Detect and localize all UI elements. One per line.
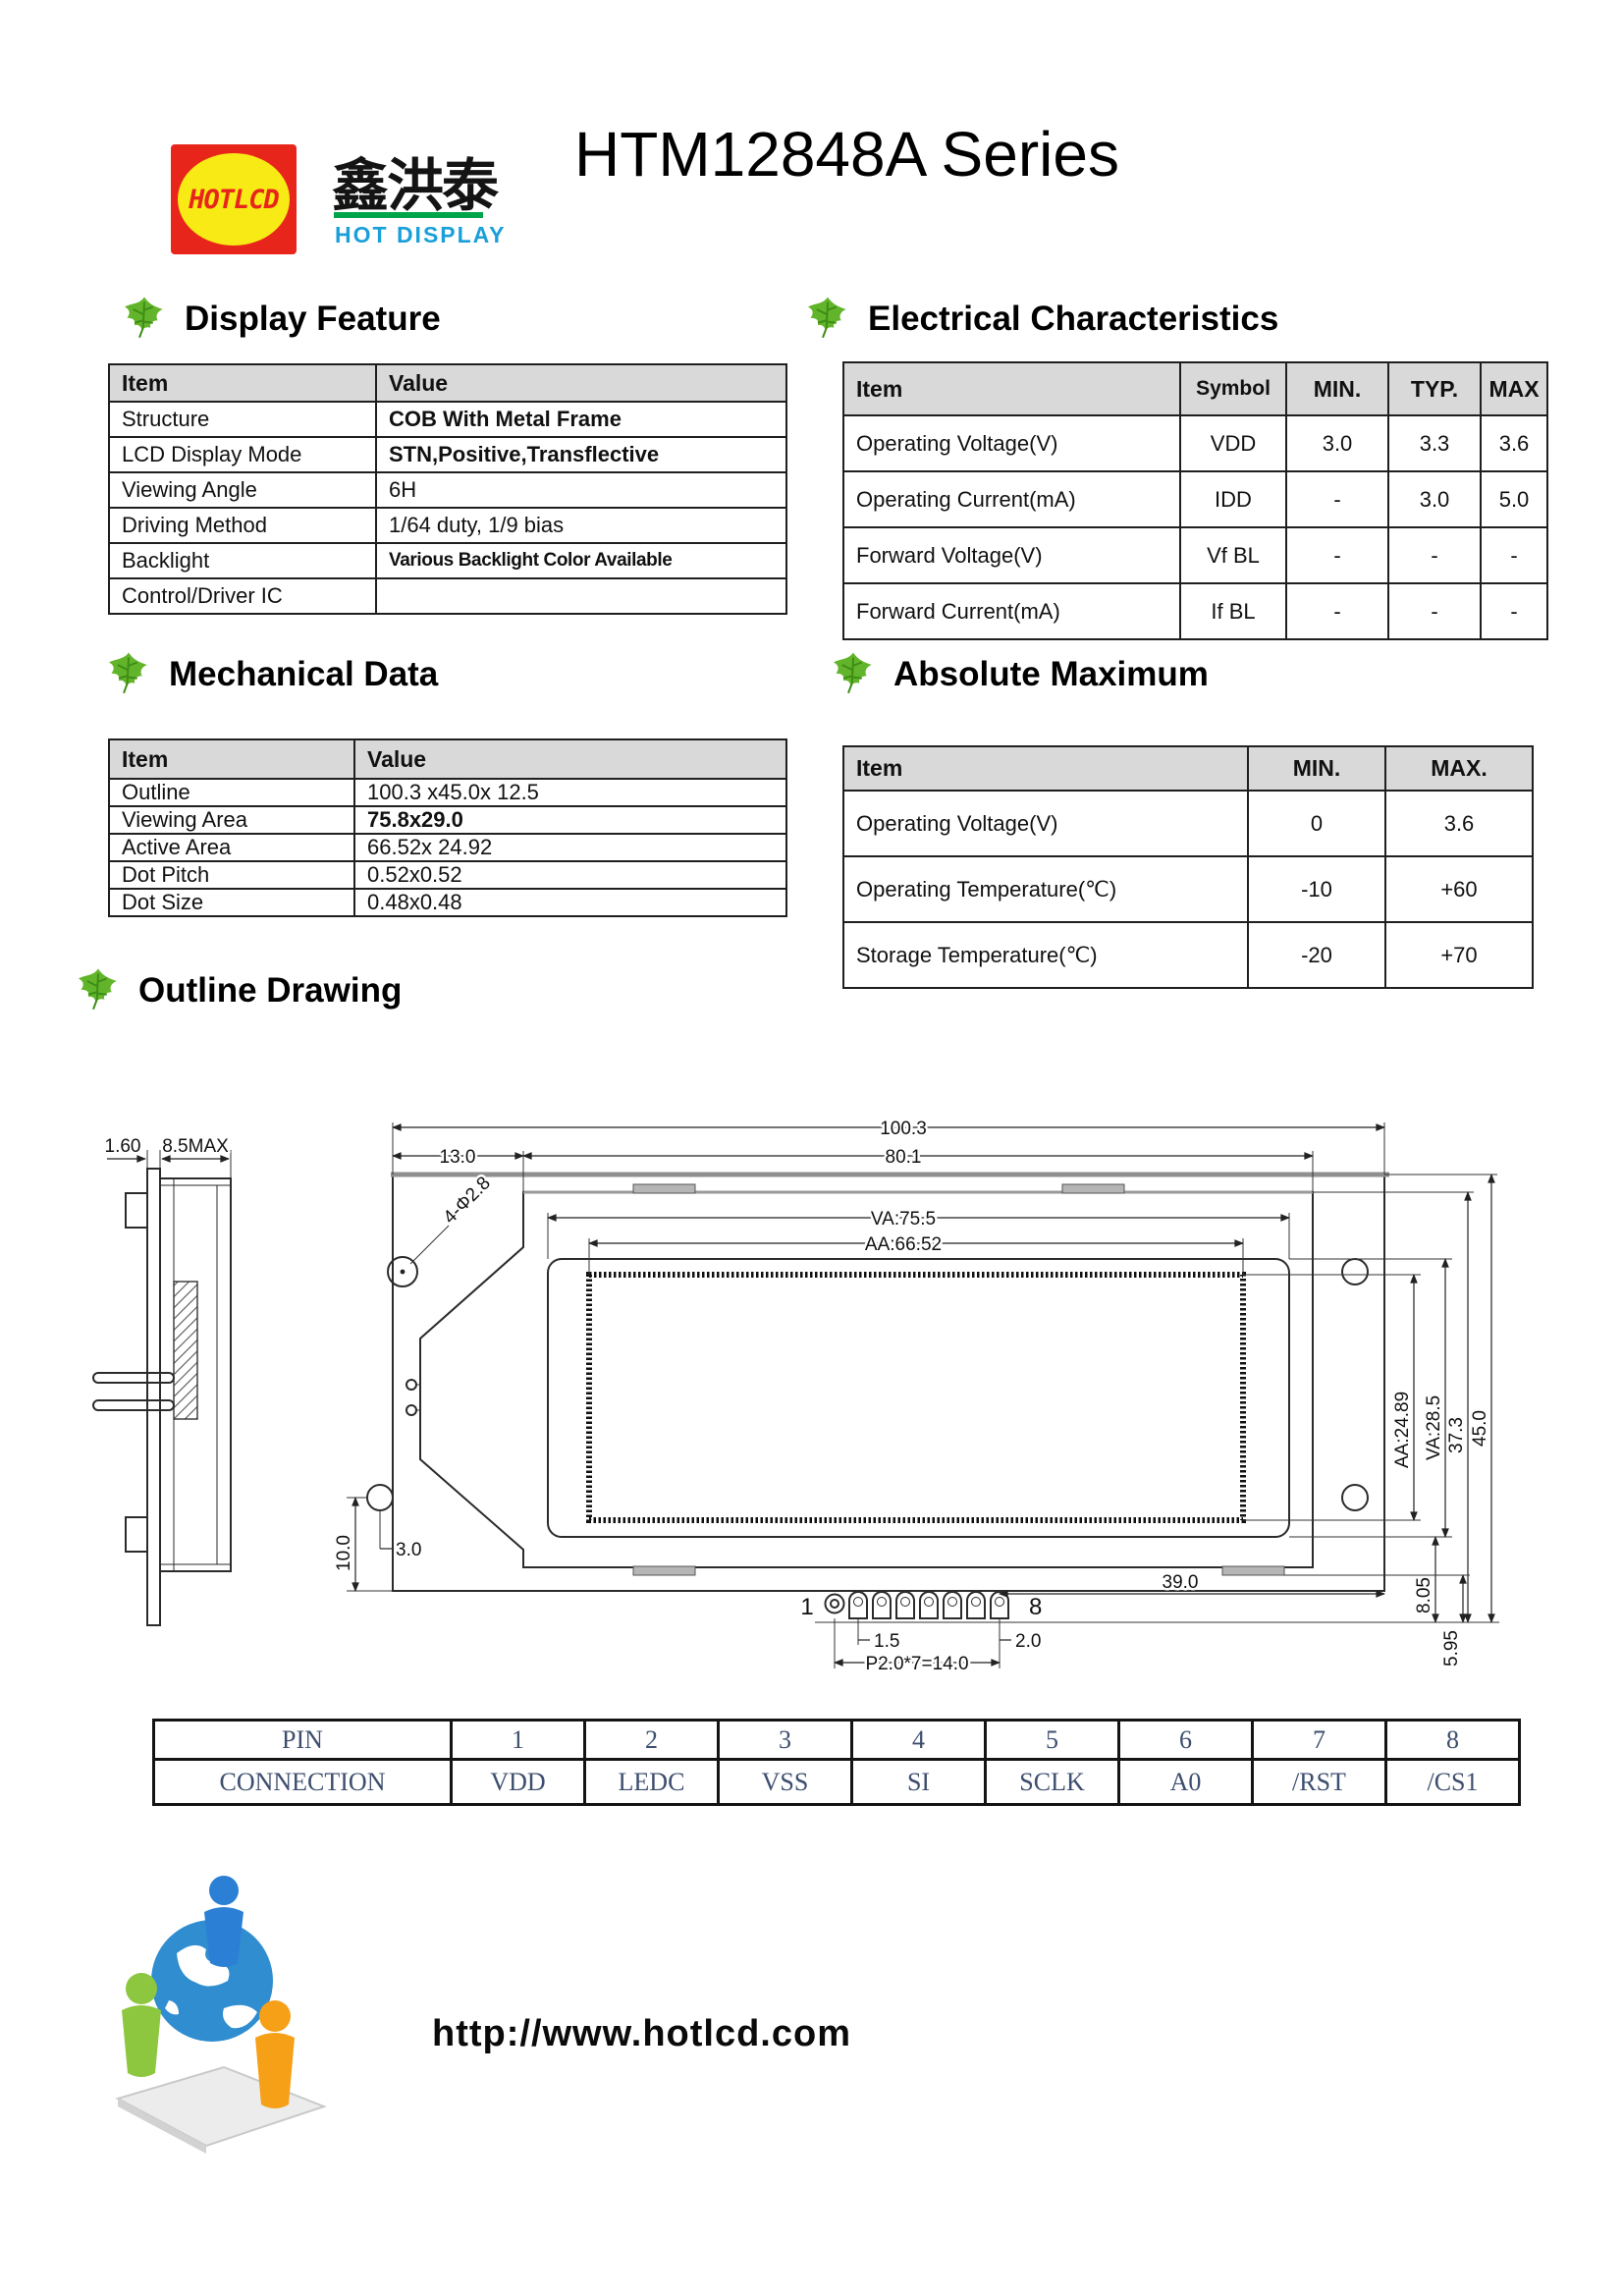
- table-cell: 3: [719, 1721, 852, 1760]
- table-cell: 3.6: [1385, 791, 1533, 856]
- table-row: Outline100.3 x45.0x 12.5: [109, 779, 786, 806]
- hatched-section: [174, 1282, 197, 1419]
- column-header: MIN.: [1248, 746, 1385, 791]
- table-cell: VDD: [1180, 415, 1286, 471]
- mounting-hole: [1342, 1485, 1368, 1510]
- table-cell: /CS1: [1386, 1760, 1520, 1805]
- dim-label-8-05: 8.05: [1414, 1577, 1434, 1613]
- logo-wordmark: HOTLCD: [189, 185, 279, 215]
- table-cell: 0.52x0.52: [354, 861, 786, 889]
- table-cell: 3.6: [1481, 415, 1547, 471]
- table-cell: Backlight: [109, 543, 376, 578]
- table-cell: A0: [1119, 1760, 1253, 1805]
- top-dimensions: 100.3 13.0 80.1 VA:75.5 AA:66.52: [393, 1119, 1384, 1275]
- table-row: Operating Voltage(V)VDD3.03.33.6: [843, 415, 1547, 471]
- dim-label-10-0: 10.0: [334, 1535, 354, 1571]
- person-orange: [255, 2000, 295, 2108]
- dim-label-va-height: VA:28.5: [1424, 1395, 1444, 1460]
- table-cell: Operating Voltage(V): [843, 791, 1248, 856]
- section-outline-drawing: Outline Drawing: [74, 966, 402, 1015]
- column-header: Value: [376, 364, 786, 402]
- dim-label-2-0: 2.0: [1015, 1631, 1041, 1652]
- dim-label-39-0: 39.0: [1163, 1572, 1199, 1593]
- table-cell: 3.0: [1286, 415, 1388, 471]
- table-cell: 0: [1248, 791, 1385, 856]
- table-cell: 66.52x 24.92: [354, 834, 786, 861]
- table-cell: -: [1286, 527, 1388, 583]
- table-cell: CONNECTION: [154, 1760, 452, 1805]
- section-electrical: Electrical Characteristics: [803, 295, 1278, 344]
- table-row: Forward Current(mA)If BL---: [843, 583, 1547, 639]
- table-row: Active Area66.52x 24.92: [109, 834, 786, 861]
- table-cell: -: [1388, 527, 1481, 583]
- table-cell: /RST: [1253, 1760, 1386, 1805]
- table-cell: VDD: [452, 1760, 585, 1805]
- pin-number-last: 8: [1029, 1594, 1042, 1620]
- pin-1: [826, 1595, 844, 1613]
- table-cell: Various Backlight Color Available: [376, 543, 786, 578]
- frame-tab: [633, 1184, 695, 1193]
- table-cell: Viewing Angle: [109, 472, 376, 508]
- table-cell: IDD: [1180, 471, 1286, 527]
- table-cell: 5.0: [1481, 471, 1547, 527]
- table-cell: 5: [986, 1721, 1119, 1760]
- website-url: http://www.hotlcd.com: [432, 2013, 851, 2055]
- table-header-row: Item Value: [109, 364, 786, 402]
- person-green: [122, 1973, 161, 2077]
- outline-drawing: 1.60 8.5MAX: [83, 1075, 1517, 1714]
- datasheet-page: HOTLCD 鑫洪泰 HOT DISPLAY HTM12848A Series …: [0, 0, 1623, 2296]
- table-cell: 1: [452, 1721, 585, 1760]
- table-row: StructureCOB With Metal Frame: [109, 402, 786, 437]
- table-cell: Operating Current(mA): [843, 471, 1180, 527]
- column-header: MAX.: [1385, 746, 1533, 791]
- leaf-icon: [829, 650, 878, 699]
- table-row: Control/Driver IC: [109, 578, 786, 614]
- table-row: Forward Voltage(V)Vf BL---: [843, 527, 1547, 583]
- side-view: 1.60 8.5MAX: [93, 1136, 231, 1625]
- leaf-icon: [74, 966, 123, 1015]
- table-cell: LEDC: [585, 1760, 719, 1805]
- table-cell: 7: [1253, 1721, 1386, 1760]
- table-header-row: Item MIN. MAX.: [843, 746, 1533, 791]
- table-row: LCD Display ModeSTN,Positive,Transflecti…: [109, 437, 786, 472]
- display-feature-table: Item Value StructureCOB With Metal Frame…: [108, 363, 787, 615]
- table-cell: Storage Temperature(℃): [843, 922, 1248, 988]
- table-cell: Active Area: [109, 834, 354, 861]
- company-logo: HOTLCD: [171, 144, 297, 254]
- table-row: Driving Method1/64 duty, 1/9 bias: [109, 508, 786, 543]
- table-cell: -: [1286, 583, 1388, 639]
- table-row: BacklightVarious Backlight Color Availab…: [109, 543, 786, 578]
- table-row: Operating Voltage(V)03.6: [843, 791, 1533, 856]
- leaf-icon: [120, 295, 169, 344]
- table-cell: +70: [1385, 922, 1533, 988]
- table-cell: Structure: [109, 402, 376, 437]
- table-cell: -: [1286, 471, 1388, 527]
- connector-pins: 1 8 1.5 2.0 P2.0*7=14.0 39.0: [800, 1572, 1384, 1674]
- mounting-hole: [367, 1485, 393, 1510]
- dim-label-13-0: 13.0: [440, 1147, 476, 1168]
- column-header: TYP.: [1388, 362, 1481, 415]
- table-row: Operating Temperature(℃)-10+60: [843, 856, 1533, 922]
- table-cell: Operating Temperature(℃): [843, 856, 1248, 922]
- logo-ellipse: HOTLCD: [178, 153, 290, 246]
- table-row: Viewing Angle6H: [109, 472, 786, 508]
- dim-label-3-0: 3.0: [396, 1540, 421, 1560]
- table-cell: Forward Voltage(V): [843, 527, 1180, 583]
- dim-label-100-3: 100.3: [880, 1119, 927, 1139]
- backlight-pin-end: [406, 1380, 416, 1390]
- table-cell: 3.0: [1388, 471, 1481, 527]
- column-header: Item: [109, 364, 376, 402]
- section-title: Display Feature: [185, 300, 441, 339]
- page-title: HTM12848A Series: [574, 118, 1119, 191]
- table-cell: Dot Size: [109, 889, 354, 916]
- pin-number-first: 1: [800, 1594, 813, 1620]
- frame-tab: [1062, 1184, 1124, 1193]
- table-cell: Dot Pitch: [109, 861, 354, 889]
- section-mechanical: Mechanical Data: [104, 650, 438, 699]
- table-cell: -20: [1248, 922, 1385, 988]
- logo-chinese-name: 鑫洪泰: [332, 139, 497, 222]
- table-cell: STN,Positive,Transflective: [376, 437, 786, 472]
- logo-underline: [334, 212, 483, 218]
- section-title: Mechanical Data: [169, 655, 438, 694]
- table-cell: 1/64 duty, 1/9 bias: [376, 508, 786, 543]
- table-cell: 100.3 x45.0x 12.5: [354, 779, 786, 806]
- table-row: CONNECTION VDD LEDC VSS SI SCLK A0 /RST …: [154, 1760, 1520, 1805]
- table-cell: 8: [1386, 1721, 1520, 1760]
- table-row: Dot Size0.48x0.48: [109, 889, 786, 916]
- leaf-icon: [104, 650, 153, 699]
- table-cell: 75.8x29.0: [354, 806, 786, 834]
- mechanical-table: Item Value Outline100.3 x45.0x 12.5 View…: [108, 738, 787, 917]
- table-header-row: Item Value: [109, 739, 786, 779]
- section-title: Outline Drawing: [138, 971, 402, 1011]
- logo-subtitle: HOT DISPLAY: [335, 222, 507, 248]
- absolute-maximum-table: Item MIN. MAX. Operating Voltage(V)03.6 …: [842, 745, 1534, 989]
- table-cell: Driving Method: [109, 508, 376, 543]
- column-header: MAX: [1481, 362, 1547, 415]
- table-cell: 3.3: [1388, 415, 1481, 471]
- table-cell: +60: [1385, 856, 1533, 922]
- mounting-hole: [1342, 1259, 1368, 1285]
- electrical-table: Item Symbol MIN. TYP. MAX Operating Volt…: [842, 361, 1548, 640]
- table-cell: -: [1481, 527, 1547, 583]
- table-cell: Operating Voltage(V): [843, 415, 1180, 471]
- column-header: Item: [109, 739, 354, 779]
- viewing-area-glass: [548, 1259, 1289, 1537]
- dim-label-aa-width: AA:66.52: [865, 1234, 942, 1255]
- table-cell: 6H: [376, 472, 786, 508]
- column-header: Symbol: [1180, 362, 1286, 415]
- dim-label-37-3: 37.3: [1446, 1417, 1467, 1453]
- active-area-border: [589, 1275, 1243, 1520]
- table-cell: SCLK: [986, 1760, 1119, 1805]
- backlight-pin: [93, 1373, 174, 1383]
- dim-label-1-5: 1.5: [874, 1631, 899, 1652]
- table-cell: VSS: [719, 1760, 852, 1805]
- backlight-pin-end: [406, 1405, 416, 1415]
- section-title: Electrical Characteristics: [868, 300, 1278, 339]
- dim-label-45-0: 45.0: [1470, 1410, 1490, 1447]
- table-cell: -: [1388, 583, 1481, 639]
- table-cell: -: [1481, 583, 1547, 639]
- dim-label-holes: 4-Φ2.8: [440, 1173, 495, 1228]
- dim-label-5-95: 5.95: [1441, 1630, 1462, 1667]
- dim-label-1-60: 1.60: [105, 1136, 141, 1157]
- table-cell: Control/Driver IC: [109, 578, 376, 614]
- table-cell: COB With Metal Frame: [376, 402, 786, 437]
- pin-connection-table: PIN 1 2 3 4 5 6 7 8 CONNECTION VDD LEDC …: [152, 1719, 1521, 1806]
- person-blue: [204, 1876, 243, 1967]
- table-cell: 2: [585, 1721, 719, 1760]
- column-header: Item: [843, 362, 1180, 415]
- footer-logo: [98, 1871, 344, 2156]
- table-row: Viewing Area75.8x29.0: [109, 806, 786, 834]
- table-cell: If BL: [1180, 583, 1286, 639]
- frame-tab: [1222, 1566, 1284, 1575]
- dim-label-aa-height: AA:24.89: [1392, 1392, 1413, 1468]
- table-cell: 6: [1119, 1721, 1253, 1760]
- section-absolute-maximum: Absolute Maximum: [829, 650, 1209, 699]
- section-title: Absolute Maximum: [893, 655, 1209, 694]
- section-display-feature: Display Feature: [120, 295, 441, 344]
- frame-tab: [633, 1566, 695, 1575]
- table-cell: PIN: [154, 1721, 452, 1760]
- table-header-row: Item Symbol MIN. TYP. MAX: [843, 362, 1547, 415]
- table-cell: Outline: [109, 779, 354, 806]
- table-cell: Viewing Area: [109, 806, 354, 834]
- table-cell: Forward Current(mA): [843, 583, 1180, 639]
- table-cell: Vf BL: [1180, 527, 1286, 583]
- table-row: Storage Temperature(℃)-20+70: [843, 922, 1533, 988]
- leaf-icon: [803, 295, 852, 344]
- table-cell: 4: [852, 1721, 986, 1760]
- table-cell: 0.48x0.48: [354, 889, 786, 916]
- column-header: Value: [354, 739, 786, 779]
- table-cell: SI: [852, 1760, 986, 1805]
- table-cell: [376, 578, 786, 614]
- dim-label-80-1: 80.1: [886, 1147, 922, 1168]
- table-cell: -10: [1248, 856, 1385, 922]
- dim-label-va-width: VA:75.5: [871, 1209, 936, 1230]
- column-header: Item: [843, 746, 1248, 791]
- table-cell: LCD Display Mode: [109, 437, 376, 472]
- dim-label-pitch: P2.0*7=14.0: [865, 1654, 968, 1674]
- backlight-pin: [93, 1400, 174, 1410]
- column-header: MIN.: [1286, 362, 1388, 415]
- table-row: PIN 1 2 3 4 5 6 7 8: [154, 1721, 1520, 1760]
- dim-label-8-5max: 8.5MAX: [162, 1136, 229, 1157]
- table-row: Dot Pitch0.52x0.52: [109, 861, 786, 889]
- bottom-left-dimensions: 10.0 3.0: [334, 1498, 421, 1591]
- table-row: Operating Current(mA)IDD-3.05.0: [843, 471, 1547, 527]
